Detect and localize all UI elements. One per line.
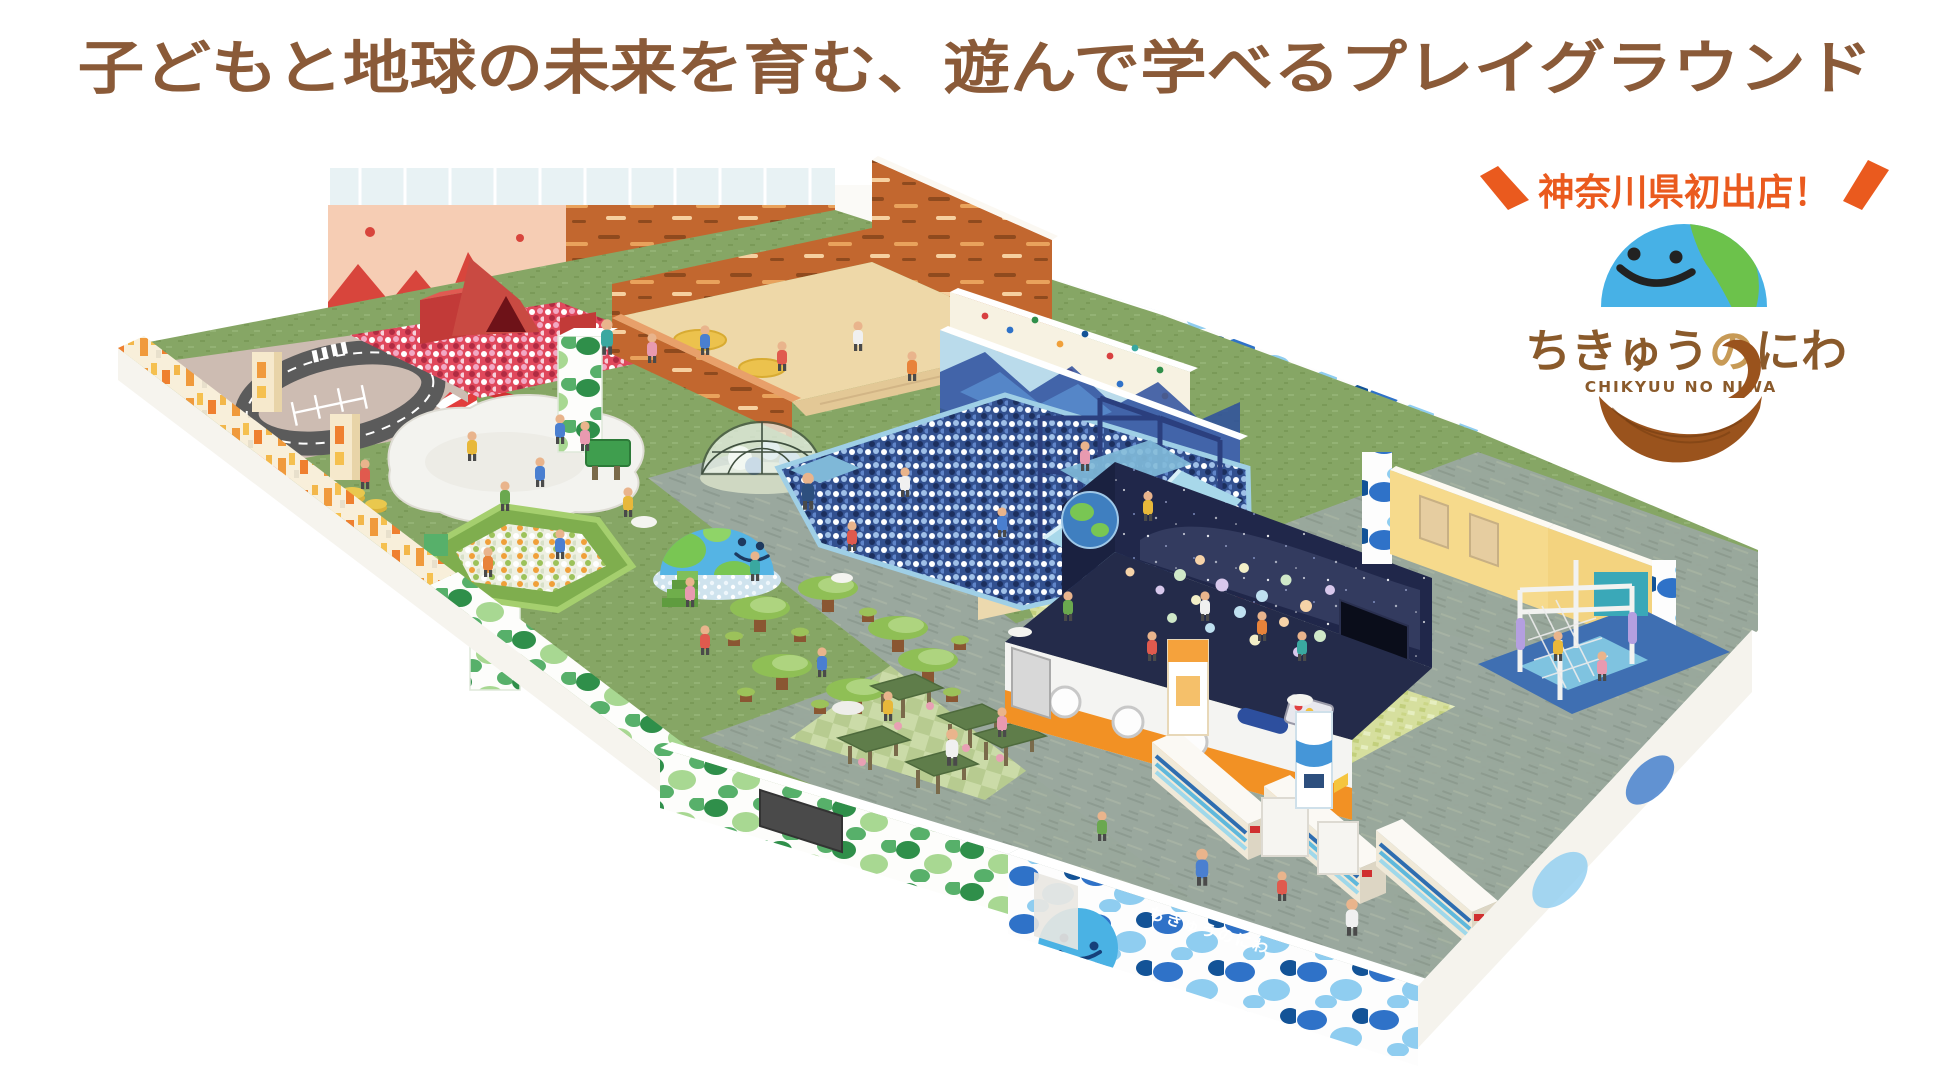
purple-pad <box>1628 612 1637 644</box>
earth-eye-right <box>1670 251 1683 264</box>
logo-jp-part3: にわ <box>1755 324 1847 378</box>
logo-jp-part1: ちきゅう <box>1525 324 1709 378</box>
badge-right-slash-icon <box>1843 160 1889 210</box>
room-door <box>1470 514 1498 566</box>
purple-pad <box>1516 618 1525 650</box>
logo-hand-icon <box>1599 396 1762 462</box>
city-column <box>330 414 360 480</box>
playground-promo-image: 子どもと地球の未来を育む、遊んで学べるプレイグラウンド 神奈川県初出店！ ちきゅ… <box>0 0 1950 1082</box>
logo-name-jp: ちきゅうのにわ <box>1525 324 1847 378</box>
earth-eye-left <box>1628 248 1641 261</box>
city-column <box>252 352 282 412</box>
ticket-tower <box>1168 640 1208 735</box>
headline-text: 子どもと地球の未来を育む、遊んで学べるプレイグラウンド <box>78 34 1873 102</box>
facade-door <box>1012 648 1050 718</box>
badge-left-slash-icon <box>1480 166 1529 210</box>
chikyuu-no-niwa-logo: ちきゅうのにわ CHIKYUU NO NIWA <box>1525 216 1847 463</box>
info-kiosk <box>1296 712 1332 808</box>
header: 子どもと地球の未来を育む、遊んで学べるプレイグラウンド <box>78 34 1873 102</box>
badge-text: 神奈川県初出店！ <box>1538 171 1830 214</box>
earth-projection <box>1062 492 1118 548</box>
kanagawa-badge: 神奈川県初出店！ <box>1480 160 1889 214</box>
round-table <box>832 701 864 715</box>
facility-isometric-render: ちきゅうのにわ <box>118 156 1764 1066</box>
promo-canvas: 子どもと地球の未来を育む、遊んで学べるプレイグラウンド 神奈川県初出店！ ちきゅ… <box>0 0 1950 1082</box>
porthole <box>1050 687 1080 717</box>
porthole <box>1113 707 1143 737</box>
room-door <box>1420 496 1448 548</box>
